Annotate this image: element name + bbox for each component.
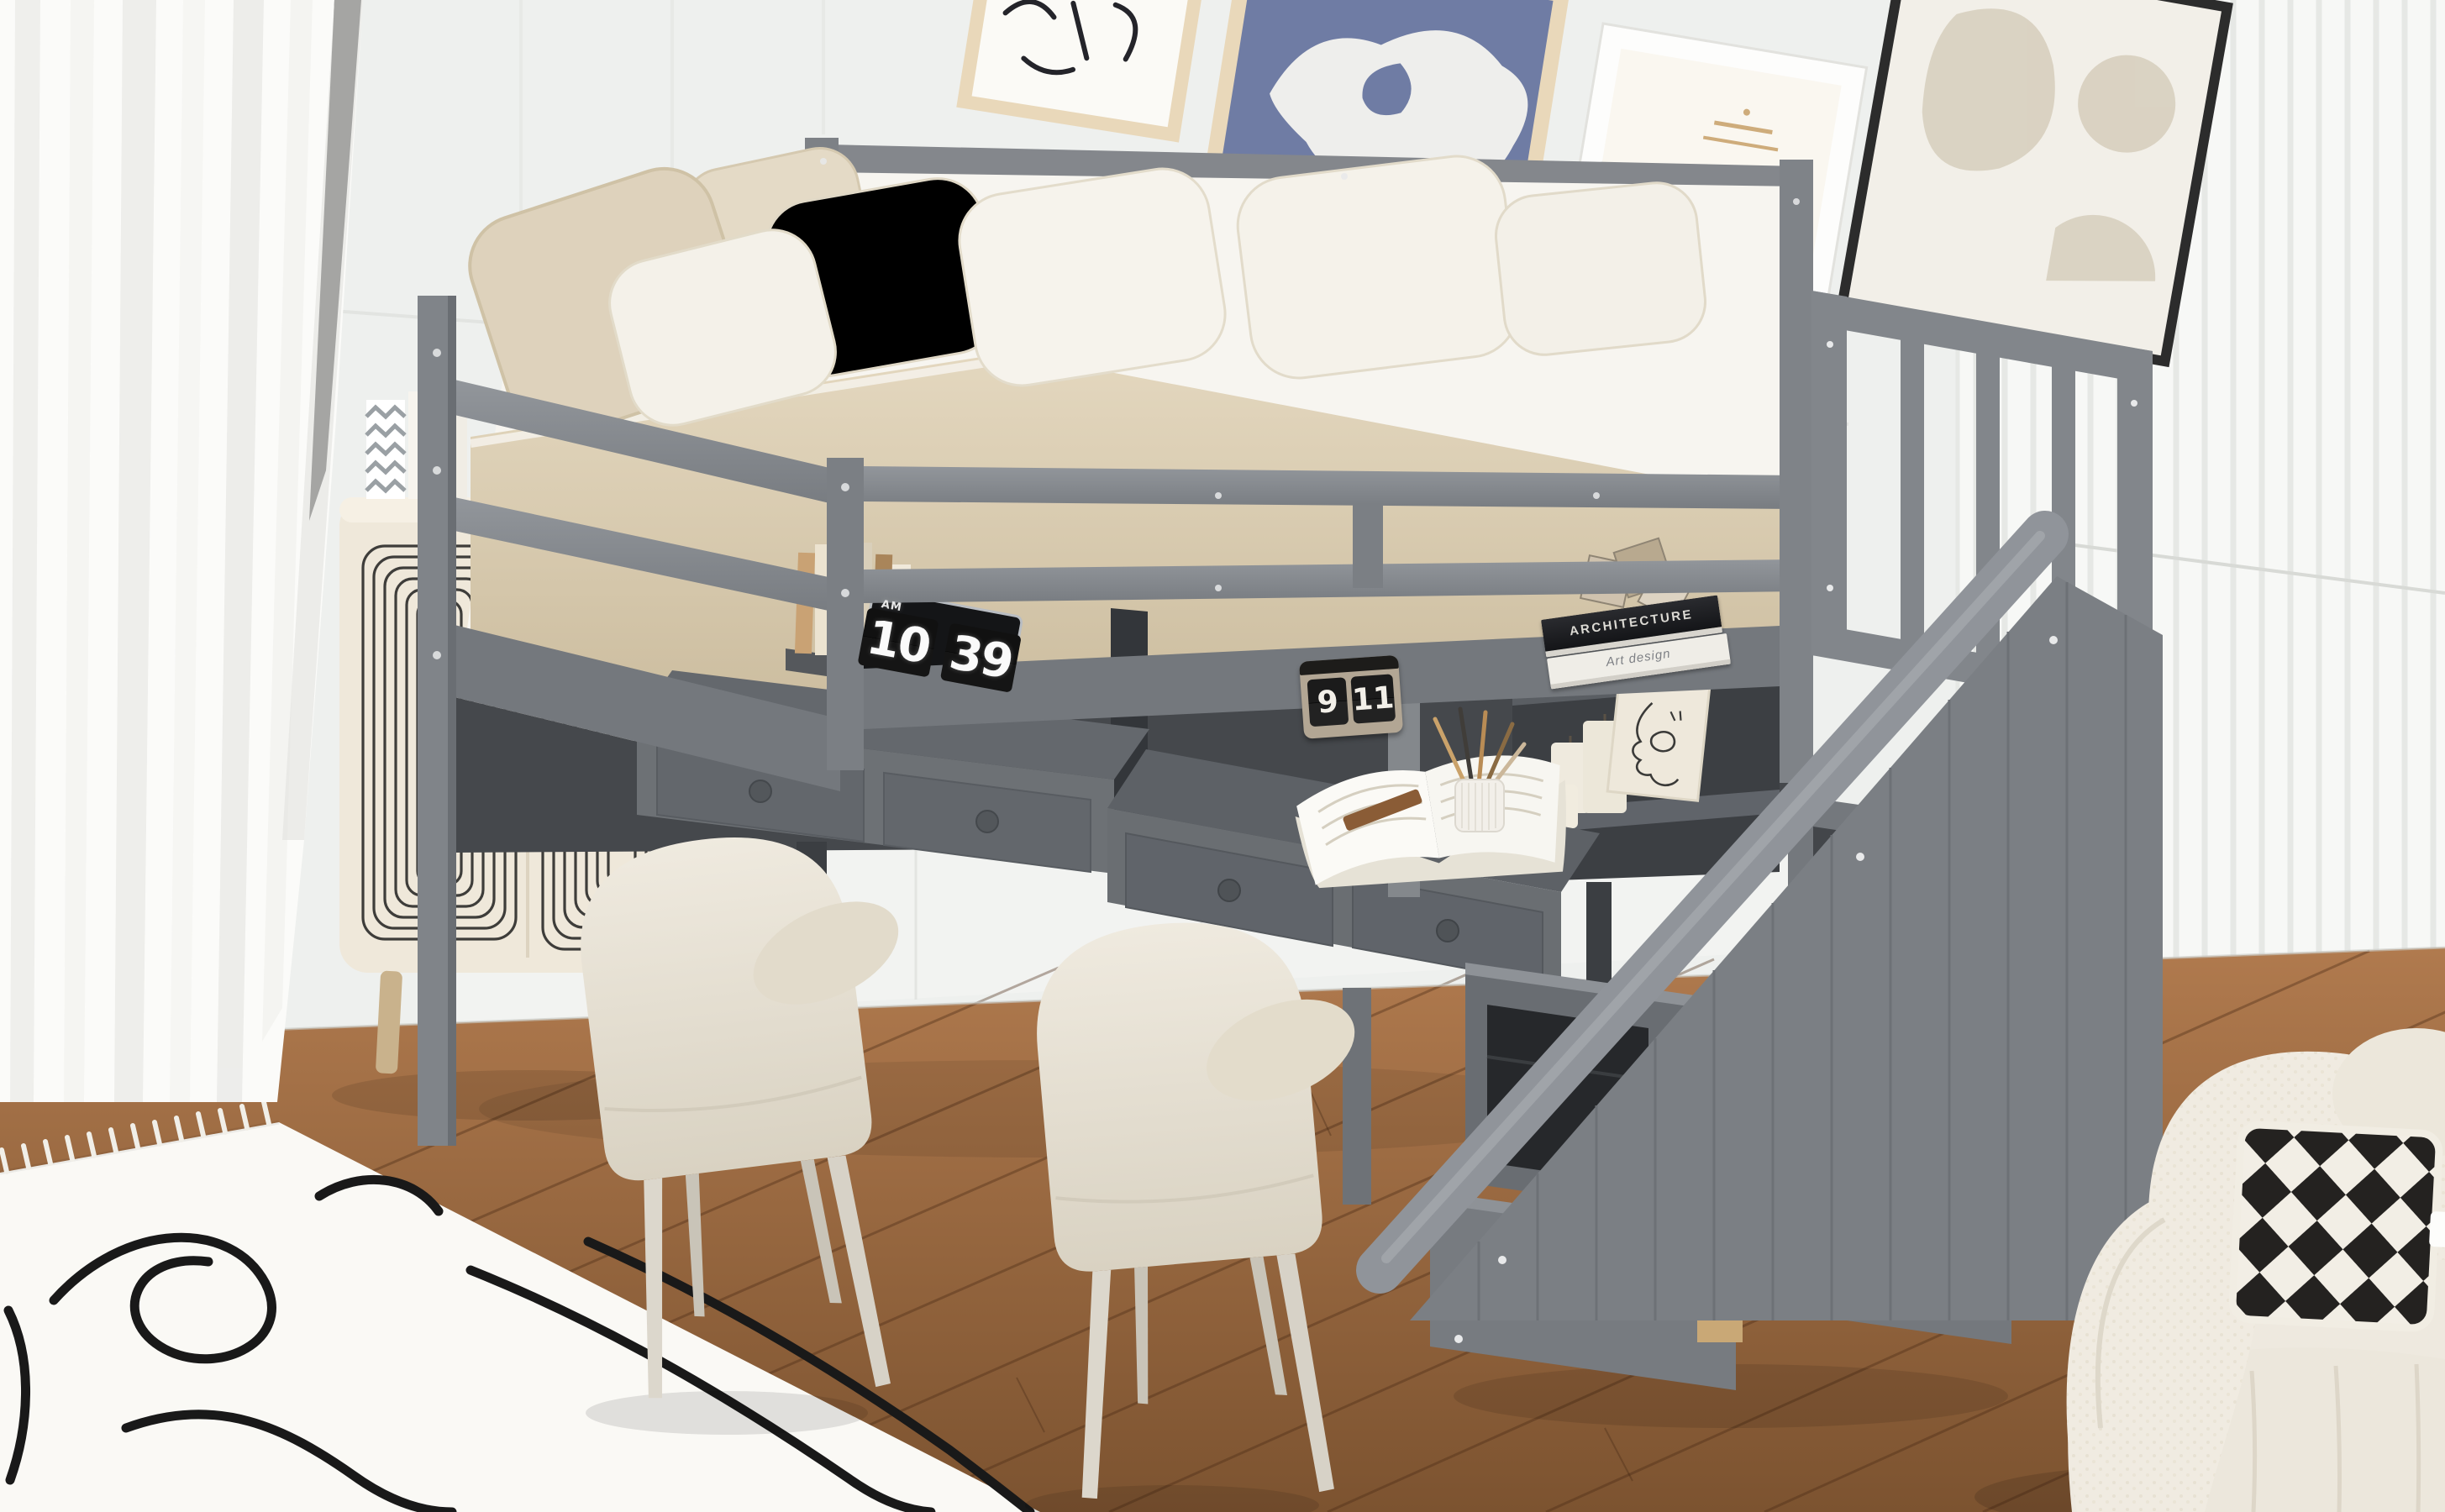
calendar-month-card: 9 — [1307, 677, 1349, 727]
clock-hour: 10 — [858, 607, 939, 678]
bedroom-photo: AM 10 39 9 11 ARCHITECTURE Art design — [0, 0, 2445, 1512]
pillow-tag — [2429, 1211, 2445, 1247]
flip-calendar: 9 11 — [1299, 655, 1403, 739]
right-post — [1780, 160, 1813, 783]
checkered-pillow — [2232, 1124, 2445, 1330]
line-art-print — [1607, 678, 1710, 801]
calendar-day-card: 11 — [1350, 674, 1396, 723]
clock-minute: 39 — [940, 622, 1022, 693]
zigzag-bookend — [366, 400, 405, 499]
scene-canvas — [0, 0, 2445, 1512]
front-corner-post — [827, 458, 864, 770]
